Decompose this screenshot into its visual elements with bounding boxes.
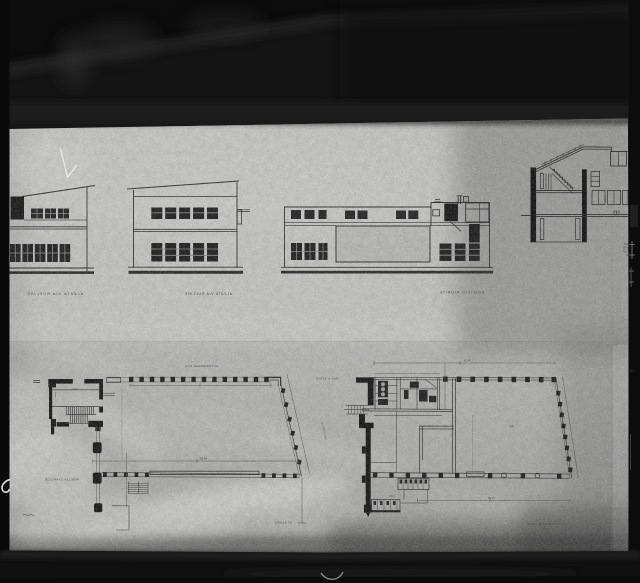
svg-text:BG: BG (630, 369, 635, 373)
svg-text:F1903: F1903 (601, 506, 621, 511)
